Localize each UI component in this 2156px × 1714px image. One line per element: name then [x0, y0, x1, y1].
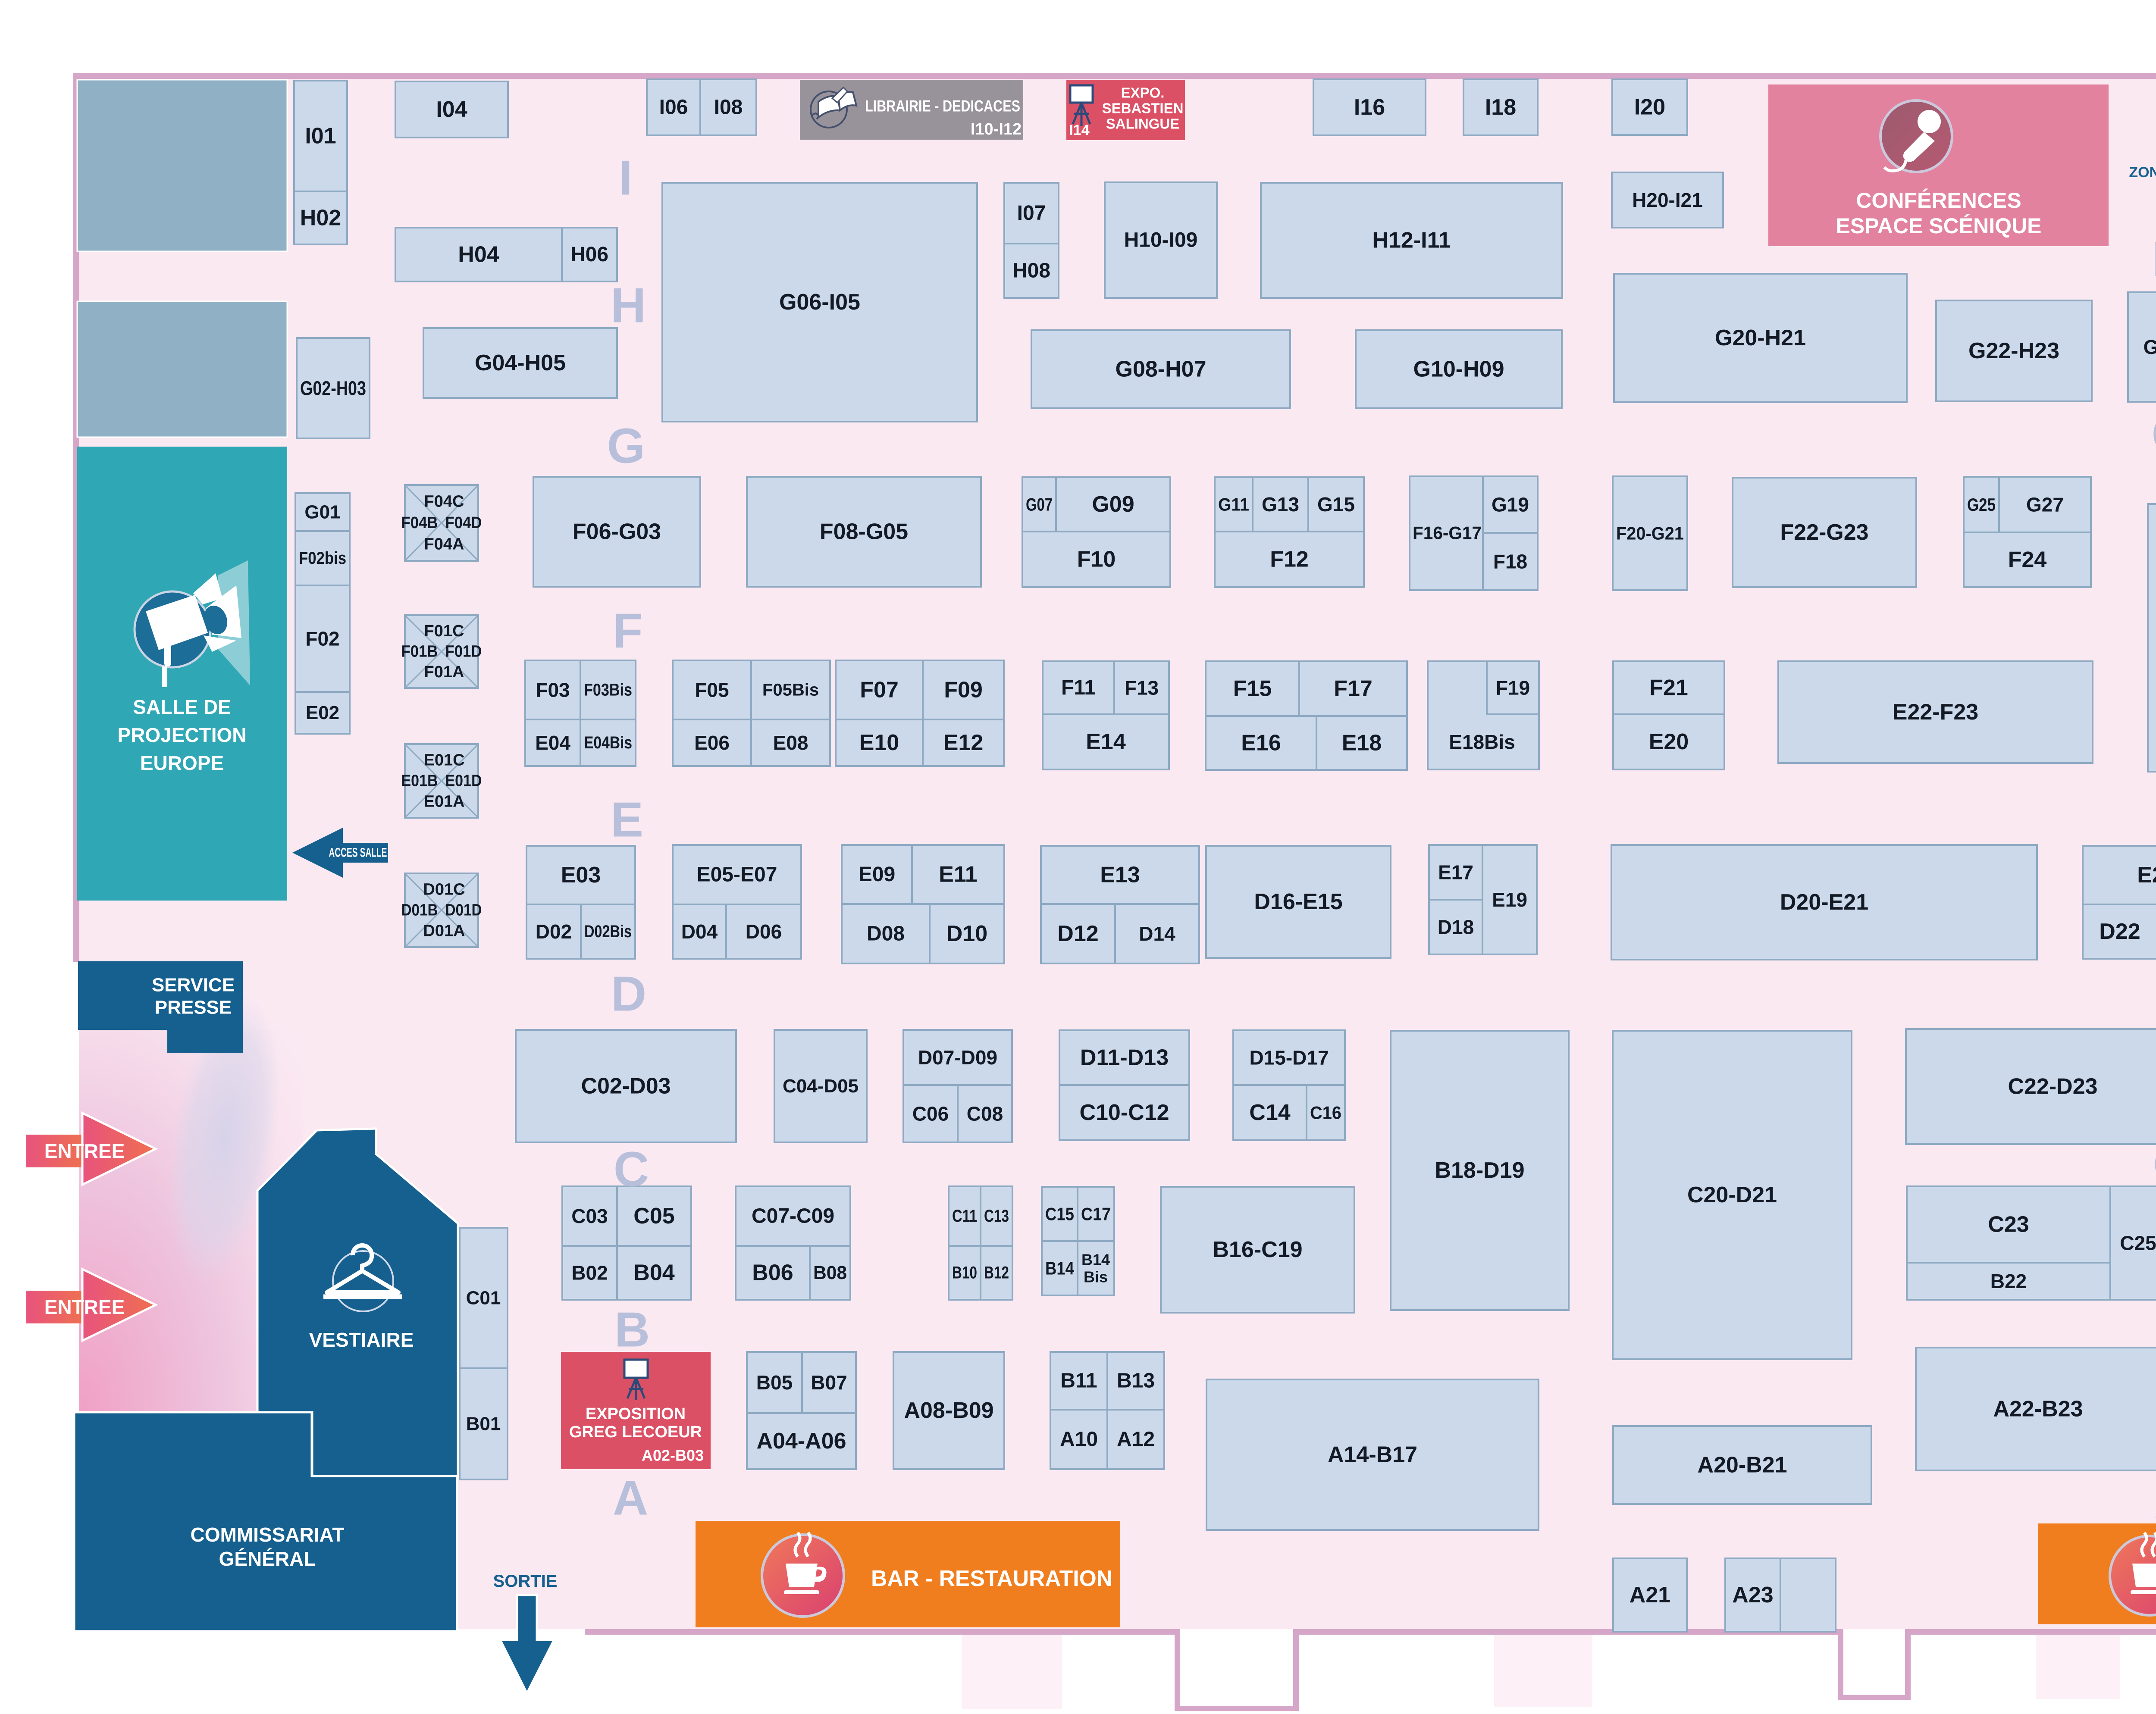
- svg-text:A10: A10: [1060, 1428, 1098, 1451]
- svg-text:F: F: [613, 604, 643, 659]
- svg-text:C22-D23: C22-D23: [2008, 1074, 2097, 1099]
- svg-text:B02: B02: [571, 1262, 608, 1284]
- svg-text:C14: C14: [1249, 1100, 1290, 1125]
- svg-text:C10-C12: C10-C12: [1079, 1100, 1169, 1125]
- svg-text:F04D: F04D: [445, 514, 482, 532]
- svg-text:E01C: E01C: [423, 751, 464, 769]
- svg-text:A22-B23: A22-B23: [1993, 1397, 2083, 1422]
- svg-text:E04: E04: [535, 732, 570, 754]
- svg-text:LIBRAIRIE - DEDICACES: LIBRAIRIE - DEDICACES: [865, 97, 1020, 115]
- svg-text:B14: B14: [1081, 1251, 1110, 1269]
- svg-text:I20: I20: [1634, 95, 1665, 120]
- svg-text:SORTIE: SORTIE: [493, 1572, 558, 1591]
- svg-text:A02-B03: A02-B03: [642, 1447, 704, 1464]
- svg-text:SERVICE: SERVICE: [152, 975, 235, 996]
- svg-text:D02Bis: D02Bis: [584, 922, 632, 941]
- svg-text:G20-H21: G20-H21: [1715, 325, 1806, 350]
- svg-text:D01D: D01D: [445, 901, 482, 920]
- svg-text:G27: G27: [2026, 494, 2064, 516]
- svg-text:B05: B05: [756, 1371, 793, 1394]
- svg-text:H: H: [611, 278, 646, 333]
- svg-text:I08: I08: [714, 96, 743, 119]
- svg-text:D11-D13: D11-D13: [1080, 1045, 1169, 1070]
- svg-text:C25: C25: [2120, 1232, 2156, 1254]
- svg-text:D15-D17: D15-D17: [1249, 1047, 1329, 1069]
- svg-text:F16-G17: F16-G17: [1413, 523, 1482, 543]
- svg-text:H10-I09: H10-I09: [1124, 229, 1198, 252]
- svg-text:EXPO.: EXPO.: [1121, 85, 1165, 101]
- svg-text:C23: C23: [1988, 1212, 2029, 1237]
- svg-text:F03: F03: [536, 679, 570, 701]
- svg-text:F12: F12: [1270, 547, 1309, 572]
- svg-text:I01: I01: [305, 124, 336, 149]
- svg-text:A14-B17: A14-B17: [1328, 1442, 1417, 1467]
- svg-text:B16-C19: B16-C19: [1213, 1237, 1302, 1262]
- svg-text:D10: D10: [946, 921, 987, 946]
- svg-text:C01: C01: [466, 1288, 501, 1309]
- svg-text:F04A: F04A: [424, 535, 464, 553]
- svg-text:A: A: [613, 1471, 648, 1526]
- svg-text:G25: G25: [1967, 494, 1996, 515]
- svg-text:C06: C06: [912, 1103, 949, 1125]
- svg-text:C07-C09: C07-C09: [752, 1205, 834, 1228]
- svg-text:D: D: [611, 967, 646, 1022]
- svg-text:C13: C13: [984, 1207, 1009, 1226]
- svg-text:C08: C08: [967, 1103, 1003, 1125]
- svg-text:A21: A21: [1630, 1583, 1670, 1608]
- svg-text:F09: F09: [944, 678, 983, 703]
- svg-text:F02: F02: [305, 628, 339, 650]
- svg-text:A08-B09: A08-B09: [904, 1398, 993, 1423]
- svg-text:ZONE FUMEUR: ZONE FUMEUR: [2129, 164, 2156, 181]
- svg-text:F05Bis: F05Bis: [762, 681, 819, 700]
- svg-text:F03Bis: F03Bis: [584, 681, 632, 700]
- svg-text:D22: D22: [2099, 919, 2140, 944]
- svg-text:E17: E17: [1438, 861, 1473, 884]
- svg-text:C11: C11: [952, 1207, 977, 1226]
- svg-text:D12: D12: [1057, 921, 1098, 946]
- svg-text:I: I: [619, 151, 633, 206]
- svg-text:F06-G03: F06-G03: [573, 519, 661, 544]
- svg-text:EUROPE: EUROPE: [140, 752, 224, 774]
- svg-text:I16: I16: [1354, 95, 1385, 120]
- svg-text:G15: G15: [1317, 493, 1355, 516]
- svg-text:G19: G19: [1492, 494, 1529, 516]
- svg-text:B07: B07: [811, 1371, 847, 1394]
- svg-text:I10-I12: I10-I12: [971, 120, 1022, 138]
- svg-text:C04-D05: C04-D05: [783, 1076, 859, 1097]
- svg-text:E04Bis: E04Bis: [584, 733, 632, 752]
- svg-text:F21: F21: [1649, 676, 1688, 701]
- svg-text:H04: H04: [458, 242, 499, 267]
- svg-text:G09: G09: [1092, 492, 1134, 517]
- svg-text:C20-D21: C20-D21: [1687, 1182, 1777, 1207]
- svg-text:ESPACE SCÉNIQUE: ESPACE SCÉNIQUE: [1836, 214, 2042, 238]
- svg-text:G08-H07: G08-H07: [1116, 357, 1206, 382]
- svg-text:D04: D04: [681, 920, 718, 943]
- svg-text:F19: F19: [1496, 677, 1530, 699]
- svg-text:D20-E21: D20-E21: [1780, 890, 1868, 915]
- svg-text:E14: E14: [1086, 729, 1126, 754]
- svg-text:D01A: D01A: [423, 922, 465, 940]
- svg-text:C03: C03: [571, 1205, 608, 1227]
- svg-text:G04-H05: G04-H05: [475, 350, 566, 375]
- svg-text:B13: B13: [1117, 1370, 1155, 1392]
- svg-text:E: E: [611, 793, 643, 848]
- svg-text:E12: E12: [943, 730, 984, 755]
- svg-text:B22: B22: [1990, 1270, 2027, 1292]
- svg-text:H06: H06: [570, 243, 608, 266]
- svg-text:F01C: F01C: [424, 622, 464, 640]
- svg-text:E02: E02: [306, 702, 339, 723]
- svg-text:G: G: [2152, 407, 2156, 462]
- svg-text:E01D: E01D: [445, 772, 482, 790]
- svg-text:B08: B08: [813, 1262, 847, 1283]
- svg-text:G07: G07: [1026, 494, 1053, 515]
- svg-text:A20-B21: A20-B21: [1697, 1453, 1787, 1478]
- svg-text:D02: D02: [536, 920, 572, 943]
- svg-text:H12-I11: H12-I11: [1372, 228, 1451, 253]
- svg-text:E16: E16: [1241, 731, 1281, 756]
- svg-text:G06-I05: G06-I05: [779, 290, 860, 315]
- svg-text:C: C: [614, 1142, 649, 1197]
- svg-text:F13: F13: [1125, 677, 1159, 699]
- svg-text:H20-I21: H20-I21: [1632, 189, 1703, 211]
- svg-text:F02bis: F02bis: [299, 549, 346, 568]
- svg-text:E06: E06: [694, 732, 730, 754]
- svg-text:SALINGUE: SALINGUE: [1106, 116, 1180, 132]
- svg-text:B04: B04: [633, 1260, 674, 1285]
- svg-text:E20: E20: [1649, 729, 1689, 754]
- svg-text:PROJECTION: PROJECTION: [117, 724, 246, 746]
- svg-text:C: C: [2153, 1138, 2156, 1192]
- svg-text:B01: B01: [466, 1414, 501, 1435]
- svg-text:I18: I18: [1485, 95, 1516, 120]
- svg-text:E18Bis: E18Bis: [1449, 731, 1515, 753]
- svg-text:F07: F07: [860, 678, 899, 703]
- svg-text:H: H: [2152, 232, 2156, 287]
- svg-text:D01C: D01C: [423, 881, 465, 899]
- svg-text:E19: E19: [1492, 888, 1527, 911]
- svg-text:E13: E13: [1100, 863, 1140, 888]
- svg-text:I14: I14: [1069, 122, 1089, 138]
- svg-text:D14: D14: [1139, 923, 1175, 945]
- svg-text:GÉNÉRAL: GÉNÉRAL: [219, 1548, 316, 1570]
- svg-text:C02-D03: C02-D03: [581, 1074, 671, 1099]
- svg-text:F18: F18: [1493, 550, 1527, 573]
- svg-text:C05: C05: [633, 1204, 674, 1229]
- svg-text:E08: E08: [773, 732, 808, 754]
- svg-text:E09: E09: [859, 863, 895, 886]
- svg-text:PRESSE: PRESSE: [155, 997, 232, 1018]
- svg-text:D01B: D01B: [401, 901, 438, 920]
- svg-text:F04B: F04B: [401, 514, 438, 532]
- svg-text:F17: F17: [1334, 676, 1373, 701]
- svg-text:D16-E15: D16-E15: [1254, 889, 1342, 914]
- svg-text:B11: B11: [1060, 1370, 1097, 1392]
- svg-text:F15: F15: [1233, 676, 1272, 701]
- svg-text:B06: B06: [752, 1260, 793, 1285]
- svg-text:G24-H25: G24-H25: [2143, 336, 2156, 358]
- svg-text:F11: F11: [1061, 676, 1096, 699]
- svg-text:G11: G11: [1218, 494, 1249, 515]
- svg-text:B10: B10: [952, 1264, 977, 1282]
- svg-text:F01D: F01D: [445, 643, 482, 661]
- svg-text:F08-G05: F08-G05: [820, 519, 908, 544]
- svg-text:SEBASTIEN: SEBASTIEN: [1102, 100, 1184, 116]
- svg-text:F24: F24: [2008, 547, 2047, 572]
- svg-text:D18: D18: [1438, 916, 1474, 938]
- svg-text:F01A: F01A: [424, 663, 464, 681]
- svg-text:B14: B14: [1045, 1258, 1075, 1279]
- svg-text:F10: F10: [1077, 547, 1116, 572]
- svg-text:F05: F05: [695, 679, 729, 701]
- svg-text:F01B: F01B: [401, 643, 438, 661]
- svg-text:G13: G13: [1262, 493, 1299, 516]
- svg-text:G22-H23: G22-H23: [1968, 338, 2059, 363]
- svg-text:B: B: [614, 1303, 650, 1357]
- svg-text:EXPOSITION: EXPOSITION: [586, 1405, 686, 1423]
- svg-text:B18-D19: B18-D19: [1435, 1158, 1524, 1183]
- svg-text:G02-H03: G02-H03: [300, 377, 366, 400]
- svg-text:E01B: E01B: [401, 772, 438, 790]
- svg-text:A12: A12: [1117, 1428, 1155, 1451]
- svg-text:A: A: [2154, 1474, 2156, 1529]
- svg-text:E22-F23: E22-F23: [1893, 700, 1978, 725]
- svg-text:CONFÉRENCES: CONFÉRENCES: [1856, 188, 2021, 213]
- svg-text:E03: E03: [561, 863, 601, 888]
- svg-text:F20-G21: F20-G21: [1616, 523, 1684, 544]
- svg-text:B12: B12: [984, 1264, 1009, 1282]
- svg-text:E10: E10: [859, 730, 899, 755]
- svg-text:ENTREE: ENTREE: [44, 1296, 125, 1318]
- svg-text:ENTREE: ENTREE: [44, 1140, 125, 1162]
- svg-text:D07-D09: D07-D09: [918, 1046, 997, 1069]
- svg-text:G: G: [607, 419, 646, 474]
- svg-text:E23: E23: [2137, 863, 2156, 888]
- svg-text:G10-H09: G10-H09: [1413, 357, 1504, 382]
- svg-text:SALLE DE: SALLE DE: [133, 696, 231, 718]
- svg-text:C17: C17: [1081, 1204, 1111, 1224]
- svg-text:COMMISSARIAT: COMMISSARIAT: [191, 1523, 345, 1546]
- svg-text:I04: I04: [436, 97, 467, 122]
- svg-text:D08: D08: [867, 923, 905, 945]
- svg-text:I06: I06: [659, 96, 688, 119]
- svg-text:D06: D06: [746, 920, 782, 943]
- svg-text:C15: C15: [1045, 1204, 1074, 1224]
- svg-text:E01A: E01A: [423, 792, 464, 810]
- svg-text:F04C: F04C: [424, 493, 464, 511]
- svg-text:GREG LECOEUR: GREG LECOEUR: [569, 1423, 702, 1441]
- svg-text:F22-G23: F22-G23: [1780, 520, 1868, 545]
- svg-text:A23: A23: [1732, 1583, 1773, 1608]
- svg-text:E05-E07: E05-E07: [697, 863, 777, 886]
- svg-text:G01: G01: [304, 502, 340, 523]
- svg-text:E11: E11: [939, 862, 978, 887]
- svg-text:C16: C16: [1310, 1103, 1341, 1123]
- svg-text:H02: H02: [300, 206, 341, 231]
- svg-text:ACCES SALLE: ACCES SALLE: [329, 846, 387, 860]
- svg-text:E18: E18: [1342, 731, 1382, 756]
- svg-text:BAR - RESTAURATION: BAR - RESTAURATION: [871, 1566, 1112, 1591]
- svg-text:VESTIAIRE: VESTIAIRE: [309, 1329, 414, 1351]
- svg-text:Bis: Bis: [1084, 1268, 1108, 1286]
- svg-text:A04-A06: A04-A06: [756, 1429, 846, 1454]
- svg-text:I07: I07: [1017, 202, 1046, 225]
- svg-text:H08: H08: [1012, 260, 1050, 282]
